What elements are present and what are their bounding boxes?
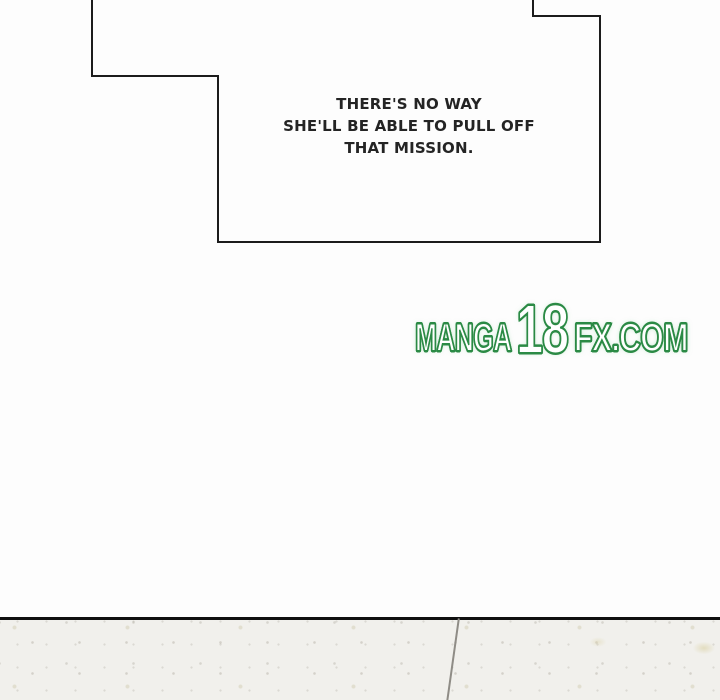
watermark-text-manga: MANGA — [415, 318, 511, 358]
watermark-text-18: 18 — [516, 294, 568, 364]
floor — [0, 620, 720, 700]
speech-line-1: THERE'S NO WAY — [218, 93, 600, 115]
speech-bubble-text: THERE'S NO WAY SHE'LL BE ABLE TO PULL OF… — [218, 93, 600, 159]
speech-line-2: SHE'LL BE ABLE TO PULL OFF — [218, 115, 600, 137]
manga-panel: THERE'S NO WAY SHE'LL BE ABLE TO PULL OF… — [0, 0, 720, 700]
floor-seam-line — [446, 618, 459, 700]
watermark-text-fx: FX.COM — [574, 318, 688, 358]
speech-line-3: THAT MISSION. — [218, 137, 600, 159]
